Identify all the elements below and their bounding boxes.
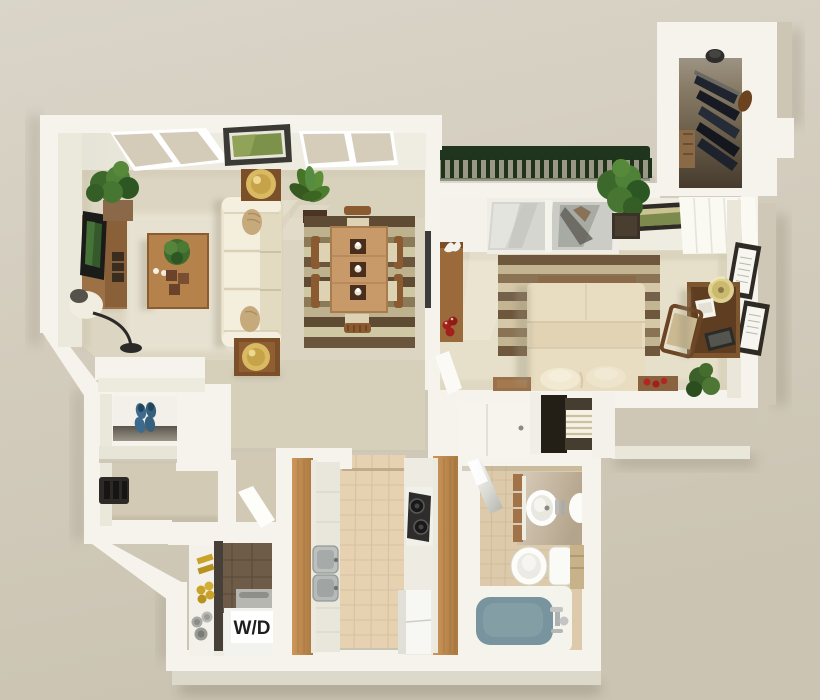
svg-text:W/D: W/D — [234, 618, 271, 639]
